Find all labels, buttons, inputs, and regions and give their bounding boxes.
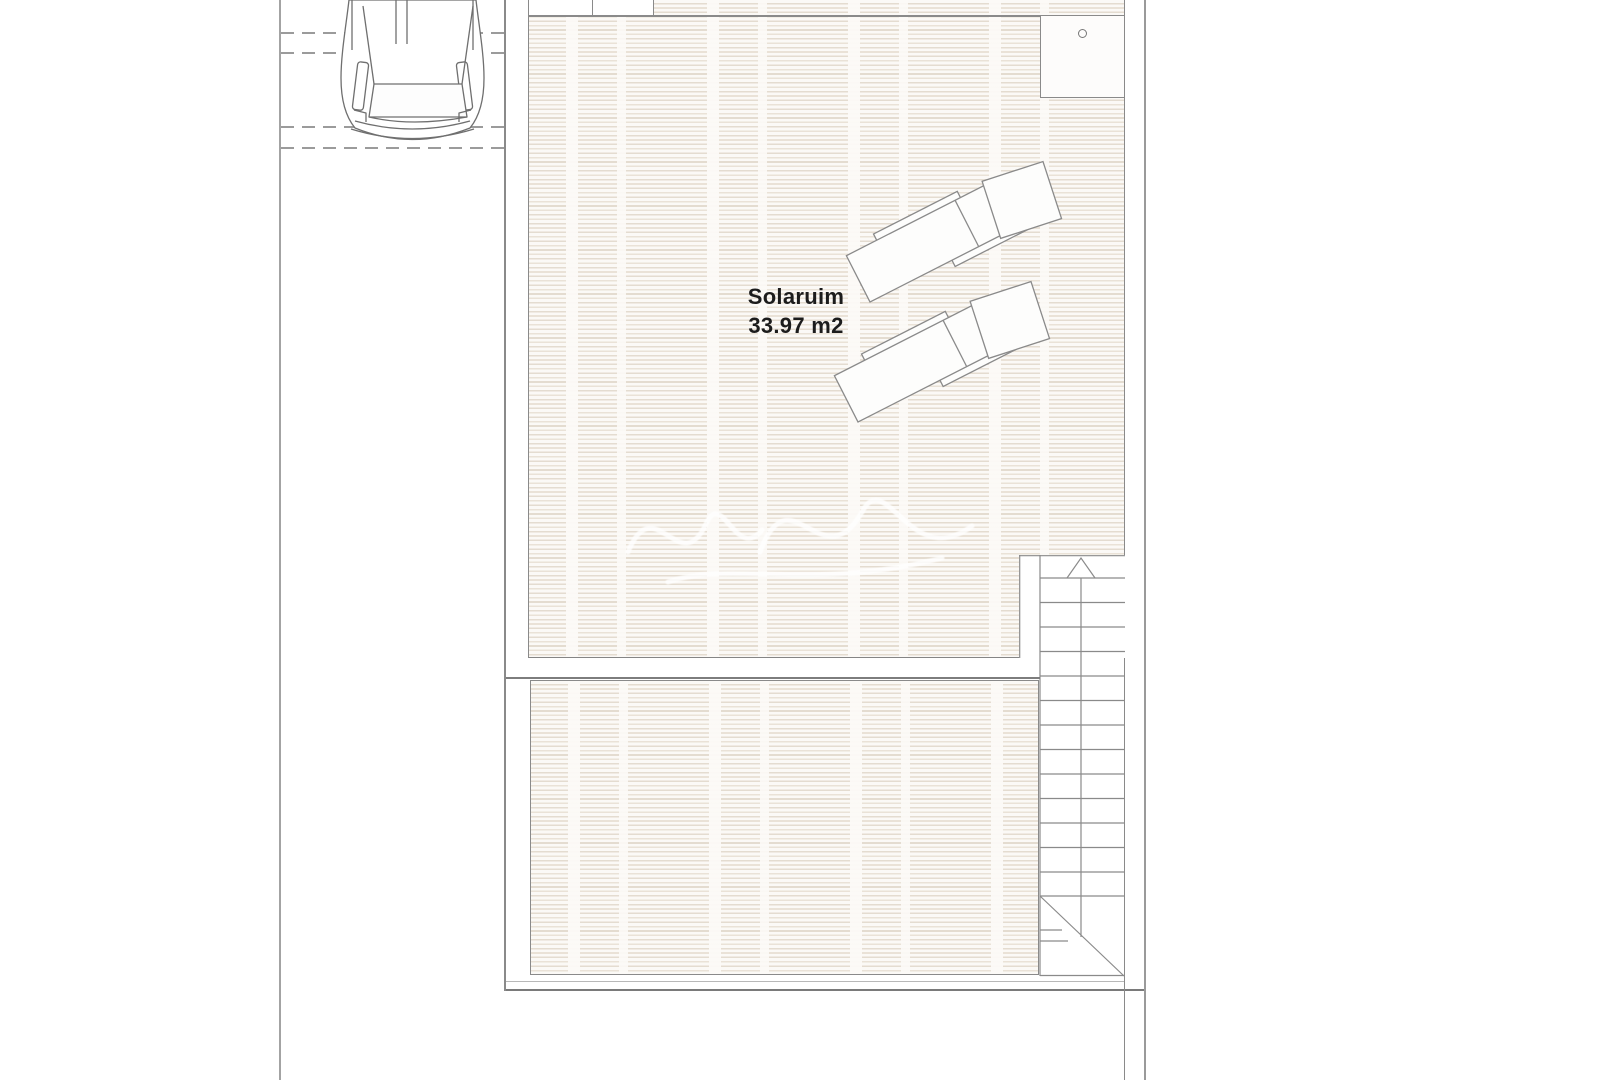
terrace-top-wall-line [504,677,1040,679]
drain-circle-icon [1078,29,1087,38]
stairwell-floor [1040,680,1125,992]
left-boundary-line [279,0,281,1080]
staircase [1019,555,1125,992]
deck-top-notch-box [592,0,654,16]
car-windshield [369,84,467,117]
car-top-view-icon [330,0,495,150]
skylight-box [1040,15,1125,98]
floor-plan-canvas: Solaruim 33.97 m2 [0,0,1620,1080]
deck-top-white-corner [529,0,592,15]
sun-loungers-group [790,120,1120,450]
lower-terrace [530,680,1039,975]
watermark-stroke [760,500,972,552]
right-wall-extension-line [1124,658,1126,1080]
terrace-bottom-inner-line [506,981,1125,982]
watermark-stroke [628,514,762,552]
building-bottom-wall-line [504,989,1145,991]
watermark-stroke [668,558,942,582]
watermark [610,430,990,610]
sun-lounger [831,271,1058,434]
deck-top-edge-line [528,15,1125,17]
stairwell-floor [1019,555,1125,680]
sun-lounger [843,151,1070,314]
right-boundary-line [1144,0,1146,1080]
